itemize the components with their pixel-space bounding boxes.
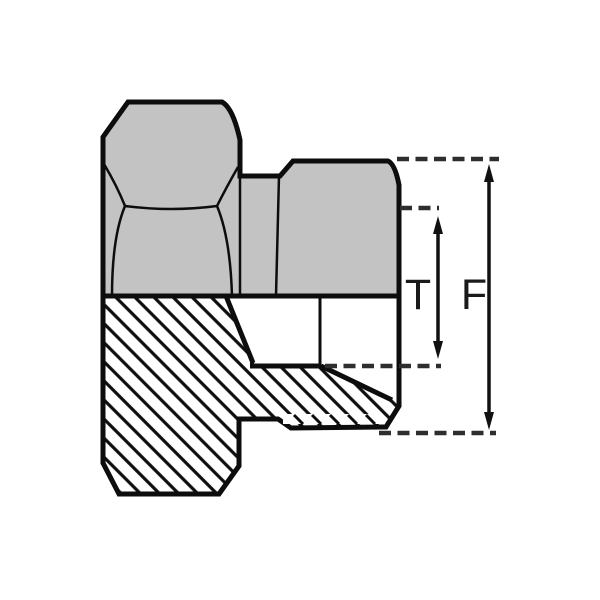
elevation-upper-half (103, 102, 399, 296)
dimension-label-f: F (461, 271, 487, 319)
thin-wall-band (283, 414, 381, 424)
section-lower-half (103, 296, 399, 494)
arrowhead-up-icon (484, 164, 494, 182)
arrowhead-down-icon (484, 412, 494, 430)
arrowhead-up-icon (433, 216, 443, 234)
drawing-canvas: T F (0, 0, 600, 600)
body-silhouette (103, 102, 399, 296)
arrowhead-down-icon (433, 341, 443, 359)
t-dimension-arrow (433, 216, 443, 359)
fitting-technical-drawing: T F (0, 0, 600, 600)
dimension-label-t: T (405, 271, 431, 319)
